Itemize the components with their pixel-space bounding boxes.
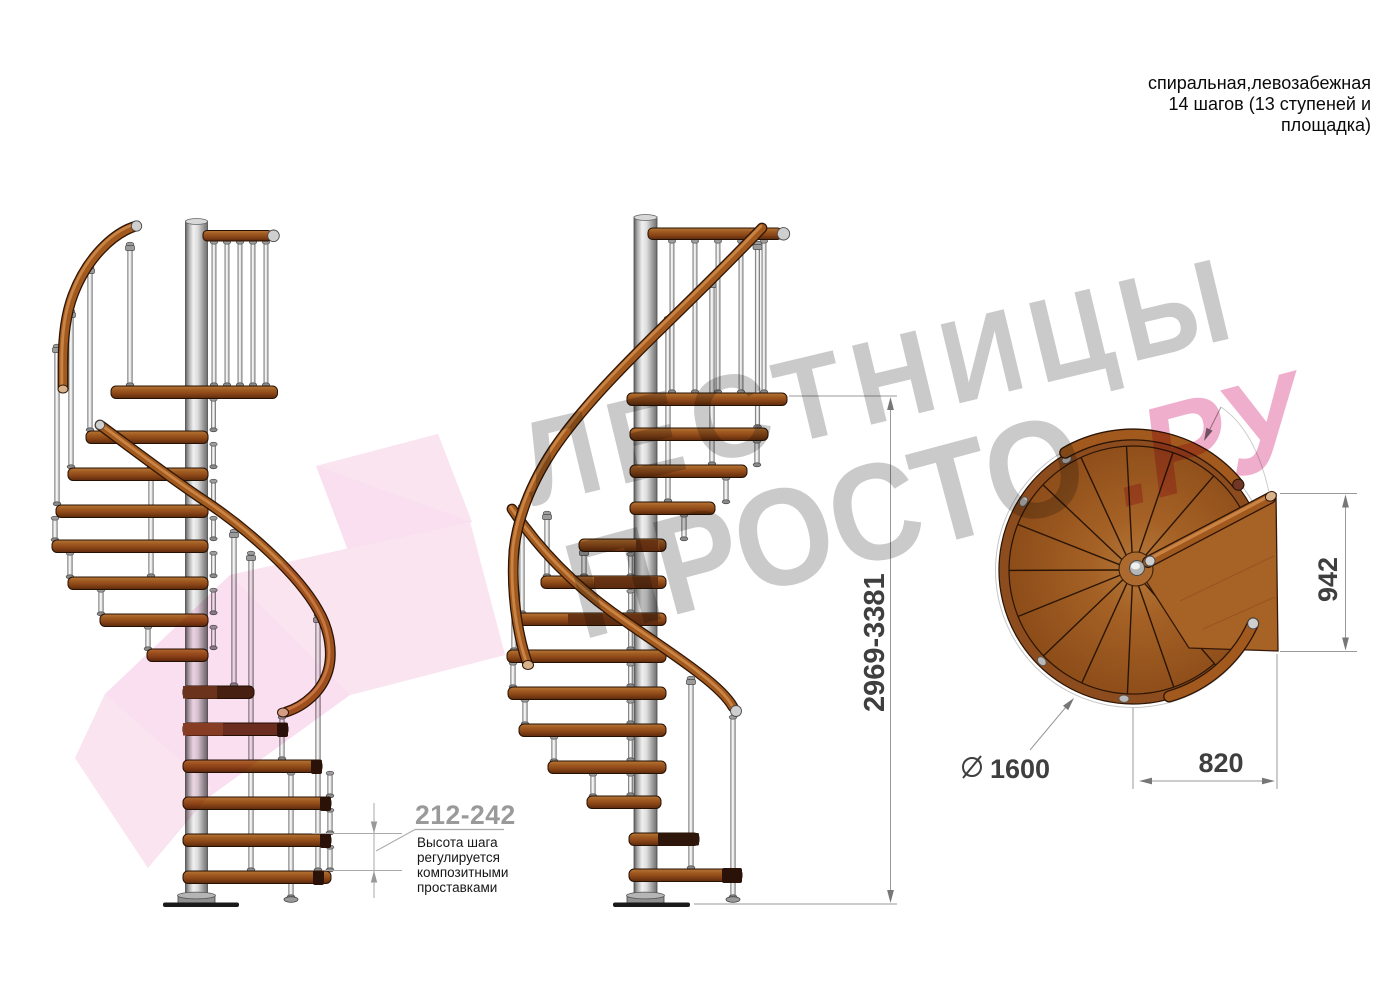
svg-text:1600: 1600: [990, 754, 1050, 784]
svg-text:композитными: композитными: [417, 865, 508, 880]
svg-text:Высота шага: Высота шага: [417, 835, 498, 850]
svg-text:проставками: проставками: [417, 880, 497, 895]
svg-text:регулируется: регулируется: [417, 850, 500, 865]
svg-text:спиральная,левозабежная: спиральная,левозабежная: [1148, 73, 1371, 93]
svg-text:942: 942: [1313, 557, 1343, 602]
svg-text:820: 820: [1198, 748, 1243, 778]
svg-text:площадка): площадка): [1281, 115, 1371, 135]
svg-text:14 шагов (13 ступеней и: 14 шагов (13 ступеней и: [1169, 94, 1372, 114]
svg-text:212-242: 212-242: [415, 800, 516, 830]
